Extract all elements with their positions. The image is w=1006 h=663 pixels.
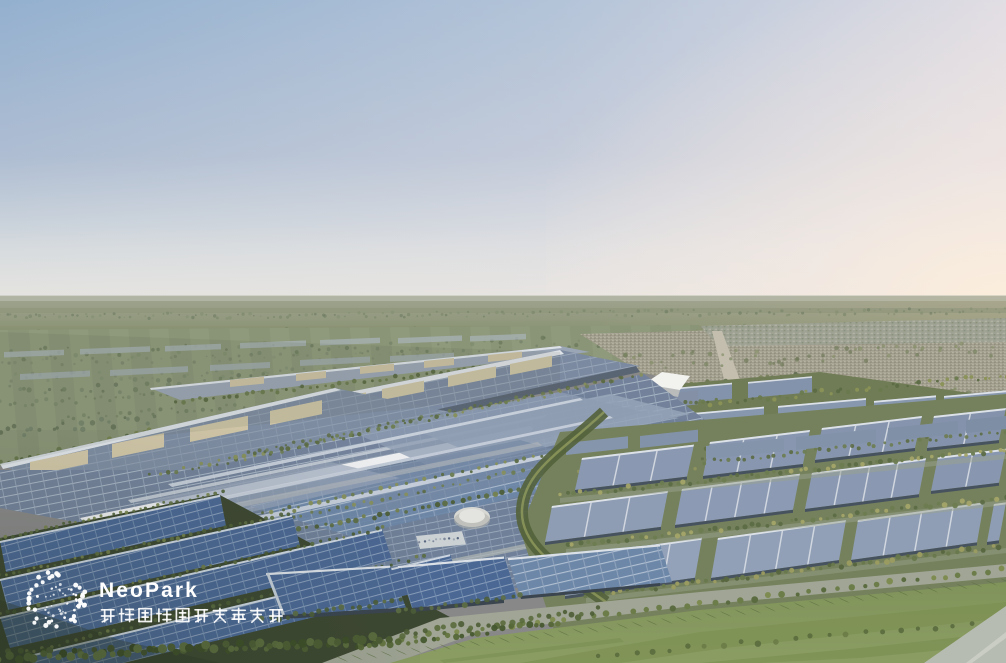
svg-text:NeoPark: NeoPark (99, 579, 199, 602)
